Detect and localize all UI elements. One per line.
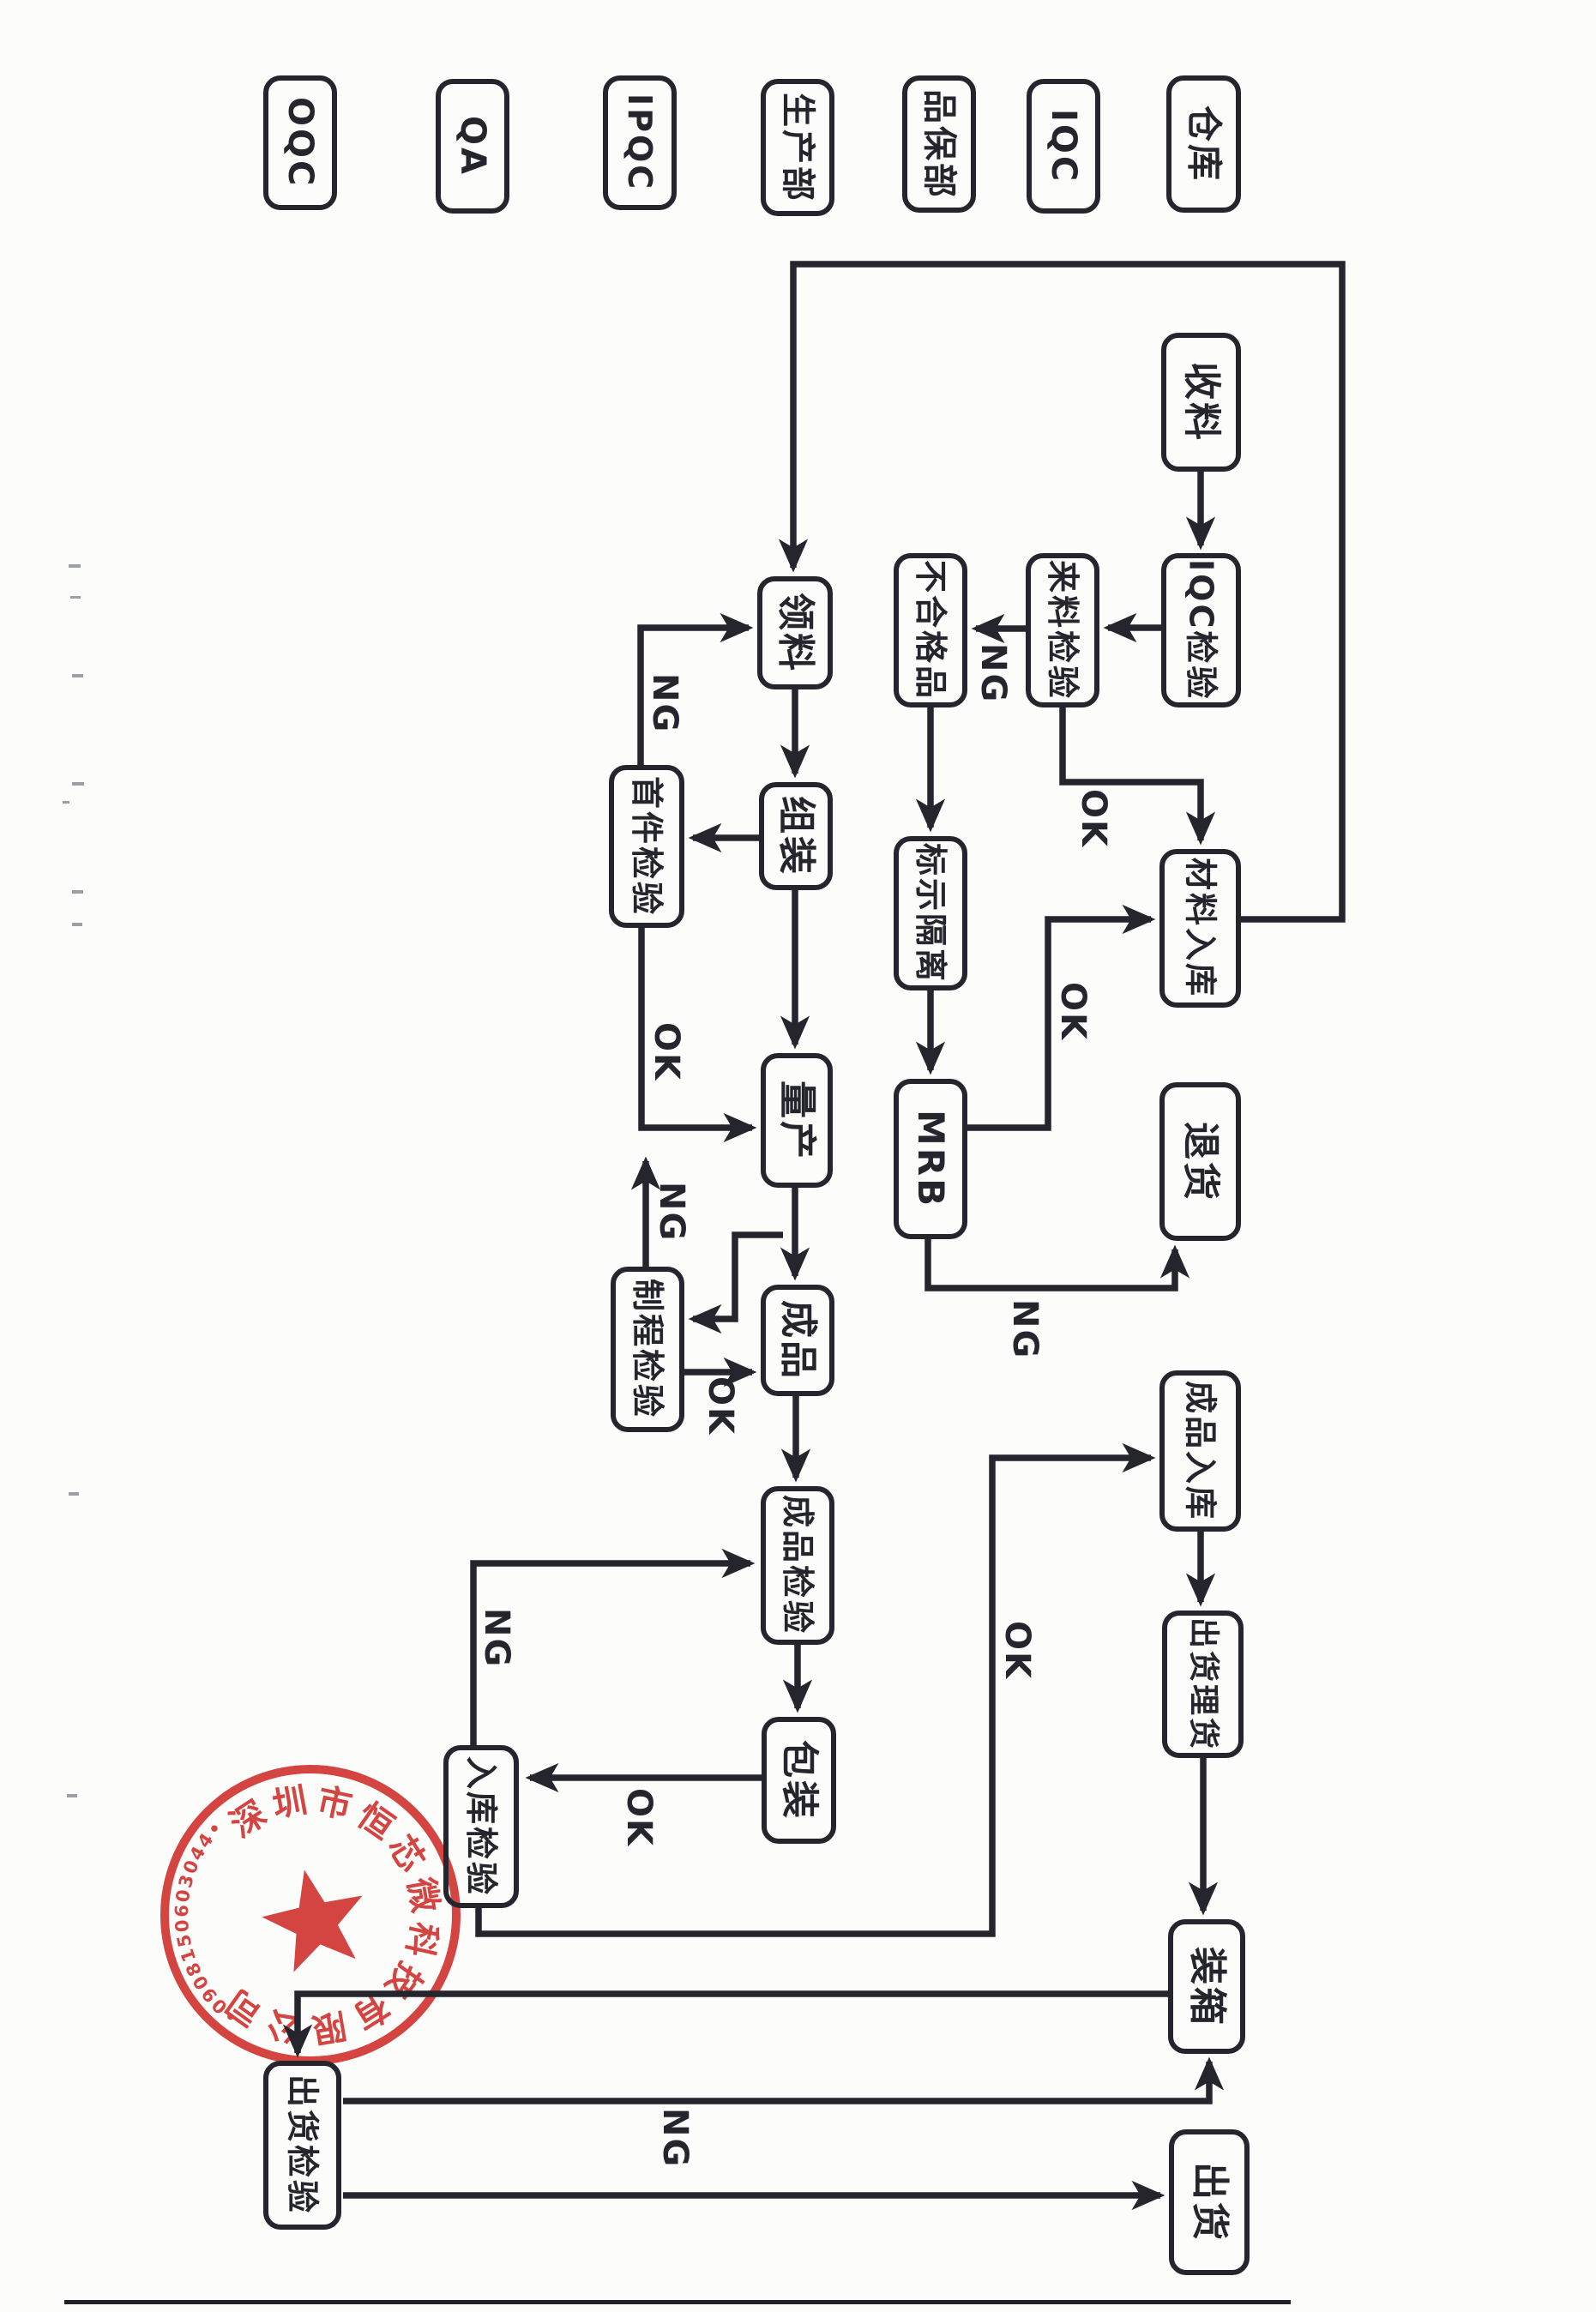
edge-label-mrb-ng: NG [1005, 1299, 1045, 1359]
node-boxing: 装箱 [1168, 1919, 1245, 2054]
lane-header-qa: QA [436, 79, 509, 214]
edge-label-in-process-ng: NG [652, 1182, 691, 1242]
lane-header-warehouse: 仓库 [1166, 75, 1241, 213]
edge-label-warehousing-ng: NG [477, 1608, 516, 1668]
lane-header-oqc: OQC [263, 75, 337, 210]
edge-label-mrb-ok: OK [1053, 982, 1093, 1041]
node-return-goods: 退货 [1159, 1082, 1241, 1241]
node-finished-product: 成品 [761, 1285, 834, 1396]
svg-text:恒: 恒 [350, 1795, 401, 1847]
edge-label-shipment-ng: NG [655, 2108, 695, 2168]
scanned-flowchart-page: { "document": { "kind": "scanned quality… [0, 0, 1596, 2312]
lane-header-iqc: IQC [1027, 79, 1100, 214]
svg-text:市: 市 [314, 1780, 356, 1827]
svg-text:6: 6 [172, 1905, 192, 1918]
node-nonconforming-product: 不合格品 [894, 553, 967, 707]
edge-label-packing-ok: OK [619, 1788, 659, 1847]
node-mass-production: 量产 [761, 1053, 833, 1188]
edge-label-warehousing-ok: OK [997, 1621, 1037, 1680]
node-first-article-inspection: 首件检验 [609, 765, 684, 928]
svg-text:限: 限 [310, 2005, 350, 2050]
svg-text:5: 5 [173, 1933, 196, 1949]
edge-label-in-process-ok: OK [701, 1376, 740, 1436]
edge-shipment-ng-to-boxing [343, 2062, 1209, 2101]
edge-label-first-article-ng: NG [645, 673, 684, 733]
edge-label-incoming-ok: OK [1074, 789, 1113, 848]
node-shipment-inspection: 出货检验 [263, 2061, 341, 2230]
node-finished-goods-storage: 成品入库 [1159, 1370, 1241, 1532]
lane-header-production: 生产部 [761, 79, 834, 216]
lane-header-ipqc: IPQC [603, 75, 677, 210]
edge-mrb-ng-to-return [928, 1239, 1175, 1288]
svg-text:圳: 圳 [269, 1779, 310, 1825]
edge-label-incoming-ng: NG [973, 643, 1013, 703]
node-shipping-tally: 出货理货 [1162, 1611, 1244, 1758]
svg-text:芯: 芯 [380, 1828, 432, 1879]
svg-text:科: 科 [399, 1918, 446, 1960]
node-iqc-check: IQC检验 [1161, 553, 1241, 707]
node-assembly: 组装 [759, 782, 833, 890]
svg-text:技: 技 [377, 1955, 430, 2007]
svg-text:0: 0 [172, 1919, 193, 1934]
node-shipping: 出货 [1169, 2129, 1250, 2275]
node-in-process-inspection: 制程检验 [611, 1267, 684, 1432]
node-packing: 包装 [762, 1717, 836, 1844]
company-seal-stamp: 深圳市恒芯微科技有限公司•4403060518090• [165, 1769, 456, 2061]
node-material-storage: 材料入库 [1159, 849, 1241, 1008]
node-mrb: MRB [894, 1079, 967, 1239]
edge-label-first-article-ok: OK [647, 1022, 686, 1081]
svg-text:0: 0 [172, 1888, 195, 1904]
node-finished-inspection: 成品检验 [761, 1486, 834, 1645]
svg-text:深: 深 [223, 1793, 274, 1845]
stamp-star-icon [262, 1869, 362, 1972]
svg-text:微: 微 [400, 1874, 445, 1916]
node-incoming-inspection: 来料检验 [1026, 553, 1099, 707]
node-warehousing-inspection: 入库检验 [443, 1745, 519, 1908]
lane-header-quality-assurance: 品保部 [902, 75, 976, 213]
node-receive-material: 收料 [1161, 333, 1241, 472]
node-draw-material: 领料 [757, 576, 833, 689]
node-mark-isolate: 标示隔离 [894, 836, 967, 990]
